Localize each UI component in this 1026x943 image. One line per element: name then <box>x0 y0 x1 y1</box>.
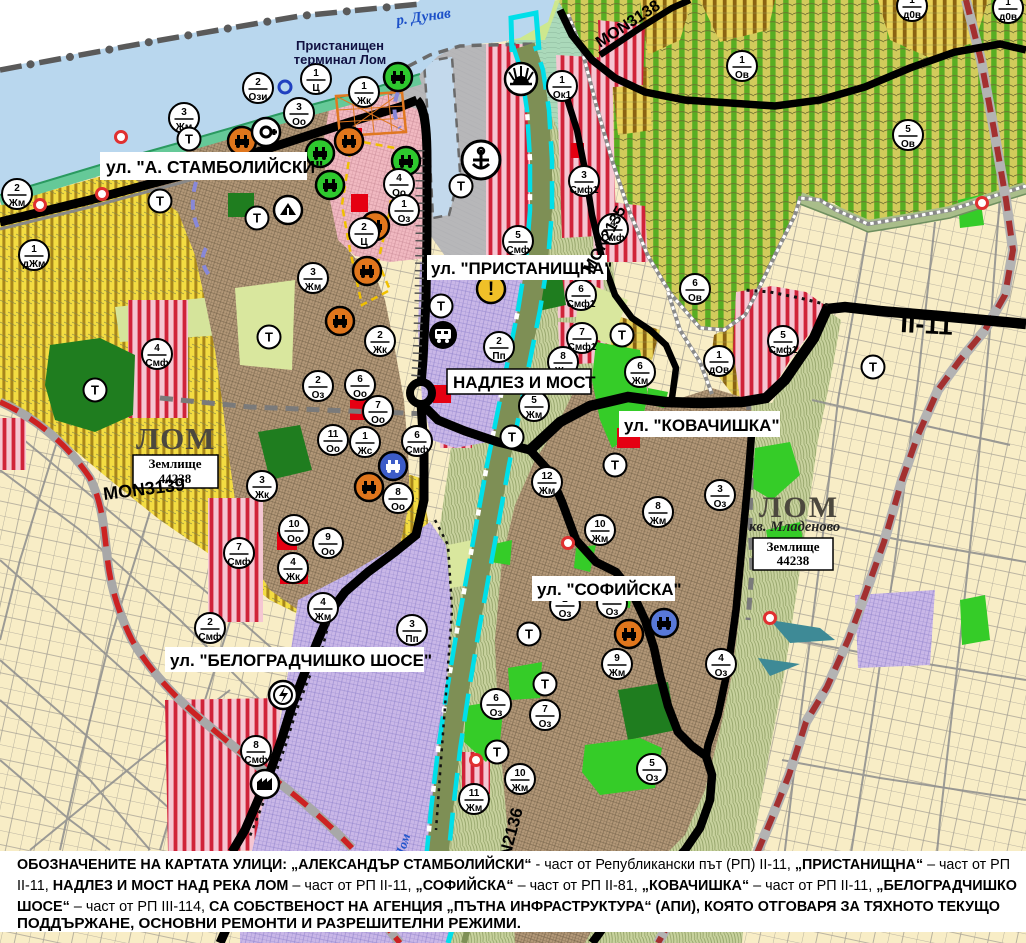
svg-text:9: 9 <box>614 653 620 664</box>
svg-text:1: 1 <box>313 68 319 79</box>
svg-text:II-11: II-11 <box>900 308 954 341</box>
svg-text:Жк: Жк <box>372 345 388 356</box>
svg-text:10: 10 <box>594 519 606 530</box>
svg-text:2: 2 <box>496 336 502 347</box>
svg-text:д0в: д0в <box>903 10 921 21</box>
svg-text:Жк: Жк <box>254 490 270 501</box>
svg-text:9: 9 <box>325 532 331 543</box>
svg-text:Т: Т <box>437 299 445 314</box>
svg-text:1: 1 <box>362 431 368 442</box>
svg-text:Смф1: Смф1 <box>769 344 798 356</box>
svg-text:3: 3 <box>310 267 316 278</box>
svg-text:терминал Лом: терминал Лом <box>294 52 386 67</box>
svg-text:Жм: Жм <box>511 783 528 794</box>
svg-text:Оз: Оз <box>646 773 659 784</box>
svg-text:Жм: Жм <box>525 410 542 421</box>
svg-text:Ов: Ов <box>735 70 749 81</box>
svg-text:2: 2 <box>377 330 383 341</box>
svg-text:Т: Т <box>525 627 533 642</box>
svg-text:Жм: Жм <box>465 803 482 814</box>
svg-text:Жк: Жк <box>285 572 301 583</box>
svg-text:Оз: Оз <box>715 668 728 679</box>
svg-text:Смф: Смф <box>227 556 250 568</box>
svg-text:Жк: Жк <box>356 96 372 107</box>
svg-text:Пп: Пп <box>492 351 505 362</box>
svg-text:Т: Т <box>869 360 877 375</box>
svg-text:Ц: Ц <box>360 237 368 248</box>
svg-text:Оо: Оо <box>391 502 405 513</box>
svg-text:Жм: Жм <box>304 282 321 293</box>
svg-text:3: 3 <box>181 107 187 118</box>
svg-text:1: 1 <box>559 75 565 86</box>
svg-text:8: 8 <box>560 351 566 362</box>
svg-text:6: 6 <box>637 361 643 372</box>
svg-text:Ок1: Ок1 <box>553 90 572 101</box>
svg-text:11: 11 <box>328 429 339 440</box>
svg-text:1: 1 <box>909 0 915 6</box>
svg-text:2: 2 <box>315 375 321 386</box>
svg-text:Смф: Смф <box>405 444 428 456</box>
svg-text:Т: Т <box>91 383 99 398</box>
svg-text:Т: Т <box>156 194 164 209</box>
svg-text:Оо: Оо <box>287 534 301 545</box>
svg-text:1: 1 <box>31 244 37 255</box>
svg-text:Оз: Оз <box>714 499 727 510</box>
svg-text:4: 4 <box>154 343 160 354</box>
svg-text:2: 2 <box>255 77 261 88</box>
svg-text:8: 8 <box>655 501 661 512</box>
svg-text:НАДЛЕЗ И МОСТ: НАДЛЕЗ И МОСТ <box>453 373 596 392</box>
svg-text:6: 6 <box>692 278 698 289</box>
svg-text:7: 7 <box>236 542 242 553</box>
svg-text:Т: Т <box>611 458 619 473</box>
svg-text:1: 1 <box>739 55 745 66</box>
svg-text:6: 6 <box>578 284 584 295</box>
svg-text:ул. "БЕЛОГРАДЧИШКО ШОСЕ": ул. "БЕЛОГРАДЧИШКО ШОСЕ" <box>170 651 432 670</box>
svg-text:6: 6 <box>493 693 499 704</box>
svg-text:3: 3 <box>717 484 723 495</box>
svg-text:3: 3 <box>259 475 265 486</box>
svg-text:12: 12 <box>541 471 553 482</box>
svg-text:Т: Т <box>508 430 516 445</box>
svg-text:ОБОЗНАЧЕНИТЕ НА КАРТАТА УЛИЦИ:: ОБОЗНАЧЕНИТЕ НА КАРТАТА УЛИЦИ: „АЛЕКСАНД… <box>17 855 1010 873</box>
svg-text:7: 7 <box>579 327 585 338</box>
svg-text:Жм: Жм <box>608 668 625 679</box>
svg-text:Оо: Оо <box>326 444 340 455</box>
svg-text:Оо: Оо <box>371 415 385 426</box>
svg-text:Жм: Жм <box>8 198 25 209</box>
svg-text:Смф1: Смф1 <box>567 298 596 310</box>
svg-text:2: 2 <box>14 183 20 194</box>
svg-text:10: 10 <box>514 768 526 779</box>
svg-text:Смф1: Смф1 <box>570 184 599 196</box>
svg-text:Жм: Жм <box>631 376 648 387</box>
svg-text:ул. "СОФИЙСКА": ул. "СОФИЙСКА" <box>537 580 682 599</box>
svg-text:Жм: Жм <box>314 612 331 623</box>
svg-text:ул. "А. СТАМБОЛИЙСКИ": ул. "А. СТАМБОЛИЙСКИ" <box>106 156 323 177</box>
svg-text:кв. Младеново: кв. Младеново <box>749 519 840 535</box>
svg-text:44238: 44238 <box>777 553 810 568</box>
svg-text:Жс: Жс <box>357 446 373 457</box>
svg-text:Оо: Оо <box>292 117 306 128</box>
svg-text:Оз: Оз <box>559 609 572 620</box>
svg-text:Оз: Оз <box>539 719 552 730</box>
svg-text:8: 8 <box>395 487 401 498</box>
svg-text:1: 1 <box>1005 0 1011 8</box>
svg-text:2: 2 <box>207 617 213 628</box>
svg-text:6: 6 <box>357 374 363 385</box>
svg-text:Т: Т <box>493 745 501 760</box>
svg-text:д0в: д0в <box>999 12 1017 23</box>
svg-text:II-11, НАДЛЕЗ И МОСТ НАД РЕКА: II-11, НАДЛЕЗ И МОСТ НАД РЕКА ЛОМ – част… <box>17 876 1017 894</box>
svg-text:Жм: Жм <box>649 516 666 527</box>
svg-text:4: 4 <box>290 557 296 568</box>
svg-text:Оз: Оз <box>312 390 325 401</box>
svg-text:Т: Т <box>541 677 549 692</box>
svg-text:4: 4 <box>396 173 402 184</box>
svg-text:Т: Т <box>618 328 626 343</box>
svg-text:Т: Т <box>253 211 261 226</box>
svg-text:3: 3 <box>296 102 302 113</box>
svg-text:5: 5 <box>649 758 655 769</box>
svg-text:ЛОМ: ЛОМ <box>136 421 215 456</box>
svg-text:4: 4 <box>320 597 326 608</box>
svg-text:7: 7 <box>375 400 381 411</box>
svg-text:Жм: Жм <box>538 486 555 497</box>
svg-text:Ц: Ц <box>312 83 320 94</box>
svg-text:Оз: Оз <box>490 708 503 719</box>
svg-text:ул. "КОВАЧИШКА": ул. "КОВАЧИШКА" <box>624 416 780 435</box>
svg-text:Оз: Оз <box>398 214 411 225</box>
svg-text:10: 10 <box>288 519 300 530</box>
svg-text:Ов: Ов <box>688 293 702 304</box>
svg-text:Т: Т <box>185 132 193 147</box>
svg-text:5: 5 <box>905 124 911 135</box>
svg-text:1: 1 <box>361 81 367 92</box>
svg-text:Оо: Оо <box>353 389 367 400</box>
svg-text:8: 8 <box>253 740 259 751</box>
svg-text:Ов: Ов <box>901 139 915 150</box>
svg-text:Оо: Оо <box>321 547 335 558</box>
svg-text:Смф: Смф <box>244 754 267 766</box>
svg-text:!: ! <box>488 279 494 300</box>
svg-text:1: 1 <box>716 350 722 361</box>
svg-text:ПОДДЪРЖАНЕ, ОСНОВНИ РЕМОНТИ И: ПОДДЪРЖАНЕ, ОСНОВНИ РЕМОНТИ И РАЗРЕШИТЕЛ… <box>17 915 521 932</box>
svg-text:Ози: Ози <box>249 92 268 103</box>
svg-text:1: 1 <box>401 199 407 210</box>
svg-text:Пристанищен: Пристанищен <box>296 38 384 53</box>
svg-text:Смф: Смф <box>198 631 221 643</box>
svg-text:ШОСЕ“ – част от РП III-114, СА: ШОСЕ“ – част от РП III-114, СА СОБСТВЕНО… <box>17 898 1000 915</box>
svg-text:11: 11 <box>469 788 480 799</box>
svg-text:6: 6 <box>414 430 420 441</box>
svg-text:5: 5 <box>515 230 521 241</box>
svg-text:Жм: Жм <box>591 534 608 545</box>
svg-text:2: 2 <box>361 222 367 233</box>
svg-text:Оз: Оз <box>606 607 619 618</box>
svg-text:4: 4 <box>718 653 724 664</box>
svg-text:3: 3 <box>409 619 415 630</box>
svg-text:5: 5 <box>531 395 537 406</box>
svg-text:3: 3 <box>581 170 587 181</box>
svg-text:7: 7 <box>542 704 548 715</box>
svg-text:Смф: Смф <box>506 244 529 256</box>
svg-text:Землище: Землище <box>766 539 819 554</box>
svg-text:Пп: Пп <box>405 634 418 645</box>
svg-text:Т: Т <box>457 179 465 194</box>
svg-text:Т: Т <box>265 330 273 345</box>
svg-text:Смф: Смф <box>145 357 168 369</box>
svg-text:5: 5 <box>780 330 786 341</box>
svg-text:дЖм: дЖм <box>23 259 46 270</box>
svg-text:Землище: Землище <box>148 456 201 471</box>
svg-text:дОв: дОв <box>709 365 729 376</box>
